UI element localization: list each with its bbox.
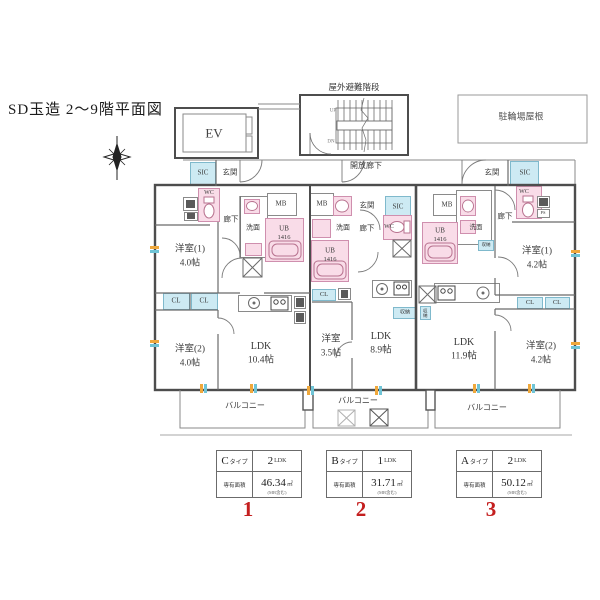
ps-label-a: PS: [540, 211, 545, 216]
kitchen-counter-c: [238, 295, 292, 312]
washroom-label-a: 洗面: [470, 225, 483, 232]
storage-label-a-hall: 収納: [482, 243, 491, 248]
type-suffix-a: タイプ: [470, 457, 488, 466]
sic-label-a: SIC: [520, 170, 531, 177]
room1-size-label-c: 4.0帖: [180, 259, 200, 268]
plan-suffix-c: LDK: [274, 458, 286, 464]
type-letter-a: A: [461, 455, 469, 467]
washer-box-a: [537, 196, 550, 208]
area-value-a: 50.12: [501, 477, 526, 489]
unit-number-2: 2: [356, 497, 367, 522]
area-cell-b: 31.71㎡ (MB含む): [363, 472, 411, 497]
hallway-label-a: 廊下: [498, 212, 513, 220]
area-value-c: 46.34: [261, 477, 286, 489]
vanity-a: [460, 196, 476, 216]
area-row-label-c: 専有面積: [217, 472, 253, 497]
room2-label-a: 洋室(2): [526, 342, 556, 352]
type-suffix-b: タイプ: [340, 457, 358, 466]
plan-cell-b: 1LDK: [363, 451, 411, 472]
appliance-box-c2: [294, 311, 306, 324]
ub-label-a: UB: [435, 228, 445, 235]
area-row-label-b: 専有面積: [327, 472, 363, 497]
area-unit-c: ㎡: [287, 482, 293, 488]
entrance-label-c: 玄関: [223, 168, 238, 176]
area-row-label-a: 専有面積: [457, 472, 493, 497]
unit-number-1: 1: [243, 497, 254, 522]
ldk-size-label-b: 8.9帖: [370, 346, 391, 356]
plan-cell-a: 2LDK: [493, 451, 541, 472]
hallway-label-c: 廊下: [224, 215, 239, 223]
vanity-b: [333, 196, 352, 216]
stairs-block: [300, 95, 408, 155]
plan-suffix-a: LDK: [514, 458, 526, 464]
elevator-label: EV: [205, 127, 222, 140]
balcony-label-b: バルコニー: [338, 397, 378, 405]
ub-size-label-a: 1416: [434, 237, 447, 244]
plan-number-a: 2: [508, 455, 514, 467]
area-note-b: (MB含む): [378, 491, 397, 496]
entrance-label-a: 玄関: [485, 168, 500, 176]
vanity-c: [244, 199, 260, 214]
plan-cell-c: 2LDK: [253, 451, 301, 472]
washer-box-c: [183, 197, 198, 211]
type-cell-b: Bタイプ: [327, 451, 363, 472]
laundry-pad-c: [245, 243, 262, 256]
area-cell-a: 50.12㎡ (MB含む): [493, 472, 541, 497]
kitchen-counter-a: [434, 283, 500, 303]
cl-label-b: CL: [320, 292, 328, 299]
kitchen-counter-b: [372, 280, 412, 298]
window-tick-marks: [150, 246, 580, 395]
area-value-b: 31.71: [371, 477, 396, 489]
unit-type-table-c: Cタイプ 2LDK 専有面積 46.34㎡ (MB含む): [216, 450, 302, 498]
balcony-label-c: バルコニー: [225, 402, 265, 410]
plan-number-c: 2: [268, 455, 274, 467]
room1-size-label-b: 3.5帖: [321, 349, 341, 358]
ldk-size-label-c: 10.4帖: [248, 356, 274, 366]
laundry-pad-b: [312, 219, 331, 238]
type-letter-c: C: [221, 455, 228, 467]
ldk-label-a: LDK: [454, 338, 475, 348]
stairs-up-label: UP: [330, 109, 336, 114]
type-suffix-c: タイプ: [230, 457, 248, 466]
unit-type-table-b: Bタイプ 1LDK 専有面積 31.71㎡ (MB含む): [326, 450, 412, 498]
type-cell-a: Aタイプ: [457, 451, 493, 472]
shelf-box-c: [184, 212, 198, 221]
sic-label-b: SIC: [393, 204, 404, 211]
cl-label-a2: CL: [553, 300, 561, 307]
outdoor-stairs-label: 屋外避難階段: [328, 83, 379, 92]
area-value-row-a: 50.12㎡: [501, 473, 533, 491]
area-cell-c: 46.34㎡ (MB含む): [253, 472, 301, 497]
ub-label-b: UB: [325, 248, 335, 255]
wc-label-c: WC: [204, 190, 214, 196]
bicycle-roof-label: 駐輪場屋根: [498, 113, 543, 122]
ldk-label-b: LDK: [371, 332, 392, 342]
mb-label-b: MB: [317, 201, 328, 208]
washroom-label-b: 洗面: [336, 225, 350, 232]
storage-label-a-ldk: 収納: [423, 309, 428, 318]
ub-size-label-c: 1416: [278, 235, 291, 242]
appliance-box-c1: [294, 296, 306, 309]
balcony-label-a: バルコニー: [467, 404, 507, 412]
sic-label-c: SIC: [198, 170, 209, 177]
ub-size-label-b: 1416: [324, 257, 337, 264]
area-value-row-c: 46.34㎡: [261, 473, 293, 491]
stairs-dn-label: DN: [327, 140, 334, 145]
room2-label-c: 洋室(2): [175, 345, 205, 355]
open-corridor-label: 開放廊下: [350, 162, 382, 170]
ldk-label-c: LDK: [251, 342, 272, 352]
evacuation-hatch-icons: [338, 409, 388, 426]
area-note-a: (MB含む): [508, 491, 527, 496]
ub-label-c: UB: [279, 226, 289, 233]
cl-label-c1: CL: [172, 298, 181, 305]
compass-icon: [104, 136, 130, 180]
storage-label-b: 収納: [400, 311, 410, 316]
plan-suffix-b: LDK: [384, 458, 396, 464]
area-unit-b: ㎡: [397, 482, 403, 488]
unit-number-3: 3: [486, 497, 497, 522]
wc-label-a: WC: [519, 189, 529, 195]
area-value-row-b: 31.71㎡: [371, 473, 403, 491]
room1-label-b: 洋室: [321, 335, 340, 345]
room2-size-label-c: 4.0帖: [180, 359, 200, 368]
wc-label-b: WC: [384, 224, 394, 230]
mb-label-a: MB: [442, 202, 453, 209]
hallway-label-b: 廊下: [360, 224, 375, 232]
washroom-label-c: 洗面: [246, 225, 260, 232]
ldk-size-label-a: 11.9帖: [451, 352, 477, 362]
area-note-c: (MB含む): [268, 491, 287, 496]
mb-label-c: MB: [276, 201, 287, 208]
appliance-box-b: [338, 288, 351, 300]
room1-label-a: 洋室(1): [522, 247, 552, 257]
area-unit-a: ㎡: [527, 482, 533, 488]
type-letter-b: B: [331, 455, 338, 467]
entrance-label-b: 玄関: [360, 201, 375, 209]
room2-size-label-a: 4.2帖: [531, 356, 551, 365]
room1-label-c: 洋室(1): [175, 245, 205, 255]
plan-number-b: 1: [378, 455, 384, 467]
type-cell-c: Cタイプ: [217, 451, 253, 472]
page-title: SD玉造 2〜9階平面図: [8, 98, 163, 119]
unit-type-table-a: Aタイプ 2LDK 専有面積 50.12㎡ (MB含む): [456, 450, 542, 498]
room1-size-label-a: 4.2帖: [527, 261, 547, 270]
floorplan-canvas: SD玉造 2〜9階平面図 EV 屋外避難階段 UP DN 開放廊下 駐輪場屋根 …: [0, 0, 600, 600]
cl-label-c2: CL: [200, 298, 209, 305]
cl-label-a1: CL: [526, 300, 534, 307]
